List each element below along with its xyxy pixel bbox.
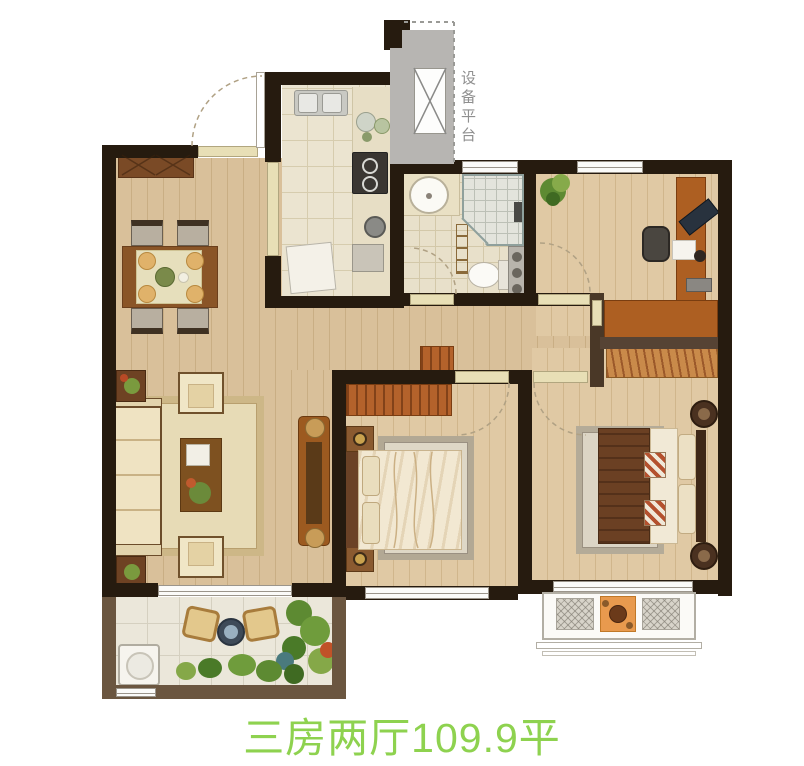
striped-pillow xyxy=(644,500,666,526)
shower-head xyxy=(514,202,522,222)
burner xyxy=(362,158,378,174)
pillow xyxy=(678,484,696,534)
study-door-threshold xyxy=(538,294,590,305)
teapot xyxy=(609,605,627,623)
bay-sill-edge xyxy=(542,651,696,656)
kitchen-appliance xyxy=(352,244,384,272)
pot xyxy=(364,216,386,238)
floor-plan: 设备平台 三房两厅109.9平 xyxy=(0,0,804,766)
speaker xyxy=(305,418,325,438)
tv-screen xyxy=(306,442,322,524)
plate xyxy=(138,285,156,303)
nightstand-decor xyxy=(698,408,710,420)
plant xyxy=(176,662,196,680)
plate xyxy=(374,118,390,134)
drain xyxy=(426,193,432,199)
desk-chair xyxy=(642,226,670,262)
lamp xyxy=(353,552,367,566)
wall-study-alcove xyxy=(600,337,718,349)
flower xyxy=(120,374,128,382)
lamp xyxy=(353,432,367,446)
plate xyxy=(186,252,204,270)
balcony-chair xyxy=(181,605,221,643)
plant xyxy=(284,664,304,684)
sink-bowl xyxy=(322,93,342,113)
wall-kitchen-left xyxy=(265,72,281,162)
wall-kitchen-top xyxy=(265,72,392,85)
wall-balcony-left xyxy=(102,595,116,699)
pillow xyxy=(362,502,380,544)
wall-living-bedroom2 xyxy=(332,384,346,600)
study-window xyxy=(577,161,643,173)
plate xyxy=(138,252,156,270)
master-sheet xyxy=(650,428,678,544)
dial xyxy=(512,268,522,278)
bowl xyxy=(178,272,189,283)
balcony-rail-window xyxy=(116,688,156,697)
pillow xyxy=(678,434,696,480)
master-blanket xyxy=(598,428,650,544)
plan-caption: 三房两厅109.9平 xyxy=(0,704,804,764)
wall-kitchen-bottom xyxy=(265,296,404,308)
wall-bath-study xyxy=(524,172,536,306)
equipment-unit xyxy=(414,68,446,134)
bowl xyxy=(362,132,372,142)
balcony-slider xyxy=(158,585,292,596)
master-headboard xyxy=(696,430,706,542)
dial xyxy=(512,252,522,262)
bedroom2-window xyxy=(365,587,489,599)
plate xyxy=(356,112,376,132)
plant xyxy=(124,564,140,580)
balcony-plate xyxy=(224,625,238,639)
wall-living-bottom-left xyxy=(102,583,158,597)
bathroom-door-threshold xyxy=(410,294,454,305)
wall-balcony-right xyxy=(332,597,346,699)
striped-pillow xyxy=(644,452,666,478)
papers xyxy=(672,240,696,260)
bathroom-window xyxy=(462,161,518,173)
burner xyxy=(362,176,378,192)
armchair-cushion xyxy=(188,384,214,408)
dining-chair xyxy=(177,220,209,246)
entry-door-leaf xyxy=(256,72,265,148)
wall-left xyxy=(102,145,116,595)
master-door-threshold xyxy=(533,371,588,383)
tray xyxy=(186,444,210,466)
sofa-armrest xyxy=(114,544,162,556)
entry-door-arc xyxy=(192,76,262,146)
sink-bowl xyxy=(298,93,318,113)
desk-return xyxy=(604,300,718,338)
dining-chair xyxy=(131,308,163,334)
plant xyxy=(198,658,222,678)
entry-threshold xyxy=(198,146,258,157)
bedroom2-wardrobe xyxy=(346,384,452,416)
balcony-chair xyxy=(241,605,280,642)
teacup xyxy=(626,622,633,629)
plate xyxy=(186,285,204,303)
wall-bedroom2-master xyxy=(518,384,532,594)
bay-sill-outer xyxy=(536,642,702,649)
fridge xyxy=(286,242,337,295)
study-plant-leaf xyxy=(546,192,560,206)
wall-right xyxy=(718,160,732,596)
plant xyxy=(256,660,282,682)
bay-cushion xyxy=(556,598,594,630)
study-plant-leaf xyxy=(552,174,570,192)
master-wardrobe xyxy=(606,348,718,378)
equipment-platform-label: 设备平台 xyxy=(457,70,478,146)
teacup xyxy=(602,600,609,607)
nightstand-decor xyxy=(698,550,710,562)
sofa xyxy=(114,406,162,546)
speaker xyxy=(305,528,325,548)
wall-niche xyxy=(592,300,602,326)
power-strip xyxy=(686,278,712,292)
bedroom2-headboard xyxy=(346,452,358,548)
plant xyxy=(228,654,256,676)
centerpiece xyxy=(155,267,175,287)
wall-kitchen-bath xyxy=(390,160,404,308)
dining-chair xyxy=(177,308,209,334)
kitchen-opening xyxy=(267,162,279,256)
wall-living-bottom-right xyxy=(292,583,346,597)
toilet-bowl xyxy=(468,262,500,288)
laundry-basin xyxy=(126,652,154,680)
armchair-cushion xyxy=(188,542,214,566)
towel-rack xyxy=(456,224,468,274)
bedroom2-door-threshold xyxy=(455,371,509,383)
mouse xyxy=(694,250,706,262)
bay-cushion xyxy=(642,598,680,630)
wall-top-dining xyxy=(102,145,198,158)
table-flower xyxy=(186,478,196,488)
pillow xyxy=(362,456,380,496)
dining-chair xyxy=(131,220,163,246)
bay-window-opening xyxy=(553,581,693,592)
